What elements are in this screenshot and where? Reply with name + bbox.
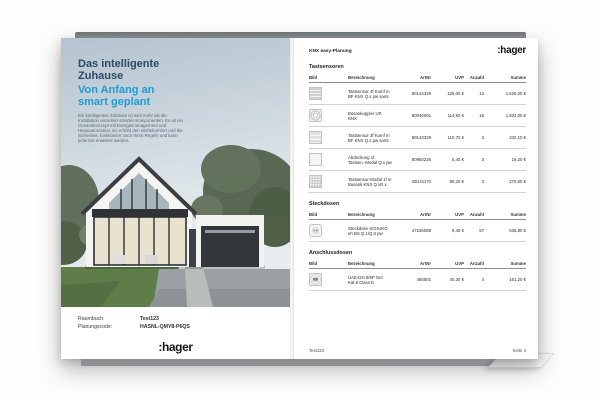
product-section: Anschlussdosen BildBezeichnungArtNrUVPAn… [309, 250, 526, 291]
uae-icon [309, 273, 322, 286]
column-header-summe: Summe [490, 75, 526, 80]
cell-anzahl: 3 [467, 135, 487, 140]
cell-summe: 535,80 € [490, 228, 526, 233]
cell-artnr: 450501 [395, 277, 431, 282]
cell-artnr: 80144329 [395, 91, 431, 96]
planungscode-label: Planungscode: [78, 323, 140, 331]
product-section: Steckdosen BildBezeichnungArtNrUVPAnzahl… [309, 201, 526, 242]
cover-text-block: Das intelligente Zuhause Von Anfang an s… [78, 58, 196, 143]
brochure-scene: Das intelligente Zuhause Von Anfang an s… [0, 0, 600, 400]
cell-uvp: 125,00 € [434, 91, 464, 96]
cell-anzahl: 16 [467, 113, 487, 118]
column-header-artnr: ArtNr [395, 212, 431, 217]
cell-anzahl: 13 [467, 91, 487, 96]
socket-icon [309, 224, 322, 237]
cell-bezeichnung: Tastsensor 3f Komf m BF KNX Q.s pw samt [348, 133, 392, 143]
brochure-book: Das intelligente Zuhause Von Anfang an s… [61, 32, 538, 366]
cell-artnr: 80141170 [395, 179, 431, 184]
table-body: UAE-Dst 8/8P Gel Kat.6 Class E 450501 40… [309, 269, 526, 291]
cell-summe: 270,60 € [490, 179, 526, 184]
column-header-anzahl: Anzahl [467, 261, 487, 266]
cell-bezeichnung: Busankoppler UP, KNX [348, 111, 392, 121]
table-row: Tastsensor 3f Komf m BF KNX Q.s pw samt … [309, 127, 526, 149]
book-bottom-edge [81, 358, 522, 366]
table-header: BildBezeichnungArtNrUVPAnzahlSumme [309, 74, 526, 83]
product-list-page: KNX easy-Planung :hager Tastsensoren Bil… [294, 38, 538, 359]
cell-artnr: 80040001 [395, 113, 431, 118]
column-header-bezeichnung: Bezeichnung [348, 261, 392, 266]
table-row: Tastsensor 4f Komf m BF KNX Q.s pw samt … [309, 83, 526, 105]
column-header-uvp: UVP [434, 75, 464, 80]
cell-uvp: 5,40 € [434, 157, 464, 162]
page-footer: Test123 Seite 3 [309, 348, 526, 353]
column-header-artnr: ArtNr [395, 75, 431, 80]
section-title: Steckdosen [309, 201, 526, 207]
cover-title: Das intelligente Zuhause [78, 58, 196, 82]
cover-plate-icon [309, 153, 322, 166]
column-header-anzahl: Anzahl [467, 212, 487, 217]
product-sections: Tastsensoren BildBezeichnungArtNrUVPAnza… [309, 64, 526, 291]
cell-uvp: 9,40 € [434, 228, 464, 233]
cell-bezeichnung: Tastsensor-Modul 1f m Busank KNX Q.xR.x [348, 177, 392, 187]
cover-page: Das intelligente Zuhause Von Anfang an s… [61, 38, 290, 359]
column-header-uvp: UVP [434, 212, 464, 217]
raumbuch-value: Test123 [140, 315, 190, 323]
column-header-summe: Summe [490, 212, 526, 217]
table-row: Steckdose SCHUKO eh BS Q.1/Q.3 pw 472360… [309, 220, 526, 242]
cell-uvp: 40,30 € [434, 277, 464, 282]
cell-bezeichnung: Steckdose SCHUKO eh BS Q.1/Q.3 pw [348, 226, 392, 236]
cell-bezeichnung: Abdeckung 1f. Tastsen.-Modul Q.x pw [348, 155, 392, 165]
keypad-4-icon [309, 87, 322, 100]
hager-logo: :hager [61, 340, 290, 354]
cover-meta: Raumbuch: Test123 Planungscode: HASNL-QM… [78, 315, 190, 331]
cell-bezeichnung: UAE-Dst 8/8P Gel Kat.6 Class E [348, 275, 392, 285]
table-row: Tastsensor-Modul 1f m Busank KNX Q.xR.x … [309, 171, 526, 193]
raumbuch-label: Raumbuch: [78, 315, 140, 323]
table-header: BildBezeichnungArtNrUVPAnzahlSumme [309, 211, 526, 220]
cell-uvp: 114,50 € [434, 113, 464, 118]
cover-body-text: Ein intelligentes Zuhause ist weit mehr … [78, 113, 184, 143]
module-grid-icon [309, 175, 322, 188]
column-header-artnr: ArtNr [395, 261, 431, 266]
cell-anzahl: 4 [467, 277, 487, 282]
table-row: Abdeckung 1f. Tastsen.-Modul Q.x pw 8096… [309, 149, 526, 171]
product-section: Tastsensoren BildBezeichnungArtNrUVPAnza… [309, 64, 526, 193]
cell-anzahl: 57 [467, 228, 487, 233]
cover-footer: Raumbuch: Test123 Planungscode: HASNL-QM… [61, 307, 290, 359]
table-header: BildBezeichnungArtNrUVPAnzahlSumme [309, 260, 526, 269]
table-body: Tastsensor 4f Komf m BF KNX Q.s pw samt … [309, 83, 526, 193]
planungscode-value: HASNL-QMY8-P6QS [140, 323, 190, 331]
cell-artnr: 47236089 [395, 228, 431, 233]
raumbuch-row: Raumbuch: Test123 [78, 315, 190, 323]
table-body: Steckdose SCHUKO eh BS Q.1/Q.3 pw 472360… [309, 220, 526, 242]
open-spread: Das intelligente Zuhause Von Anfang an s… [61, 38, 538, 359]
cell-uvp: 110,70 € [434, 135, 464, 140]
keypad-3-icon [309, 131, 322, 144]
planungscode-row: Planungscode: HASNL-QMY8-P6QS [78, 323, 190, 331]
cell-summe: 1.832,00 € [490, 113, 526, 118]
cell-uvp: 90,20 € [434, 179, 464, 184]
column-header-uvp: UVP [434, 261, 464, 266]
cell-artnr: 80960226 [395, 157, 431, 162]
column-header-anzahl: Anzahl [467, 75, 487, 80]
column-header-bild: Bild [309, 212, 345, 217]
cell-anzahl: 3 [467, 157, 487, 162]
cell-summe: 332,10 € [490, 135, 526, 140]
cell-artnr: 80143329 [395, 135, 431, 140]
cell-anzahl: 3 [467, 179, 487, 184]
lit-windows [94, 217, 186, 265]
table-row: Busankoppler UP, KNX 80040001 114,50 € 1… [309, 105, 526, 127]
cell-summe: 16,20 € [490, 157, 526, 162]
column-header-bild: Bild [309, 261, 345, 266]
hager-logo: :hager [497, 45, 526, 56]
cover-subtitle: Von Anfang an smart geplant [78, 84, 196, 108]
document-title: KNX easy-Planung [309, 49, 352, 54]
column-header-bild: Bild [309, 75, 345, 80]
section-title: Tastsensoren [309, 64, 526, 70]
section-title: Anschlussdosen [309, 250, 526, 256]
cell-bezeichnung: Tastsensor 4f Komf m BF KNX Q.s pw samt [348, 89, 392, 99]
column-header-bezeichnung: Bezeichnung [348, 212, 392, 217]
footer-page-number: Seite 3 [513, 348, 526, 353]
cell-summe: 161,20 € [490, 277, 526, 282]
table-row: UAE-Dst 8/8P Gel Kat.6 Class E 450501 40… [309, 269, 526, 291]
footer-project-name: Test123 [309, 348, 324, 353]
column-header-summe: Summe [490, 261, 526, 266]
column-header-bezeichnung: Bezeichnung [348, 75, 392, 80]
house-photo-illustration [61, 139, 290, 307]
buscoupler-icon [309, 109, 322, 122]
cell-summe: 1.625,00 € [490, 91, 526, 96]
page-header: KNX easy-Planung :hager [309, 45, 526, 56]
